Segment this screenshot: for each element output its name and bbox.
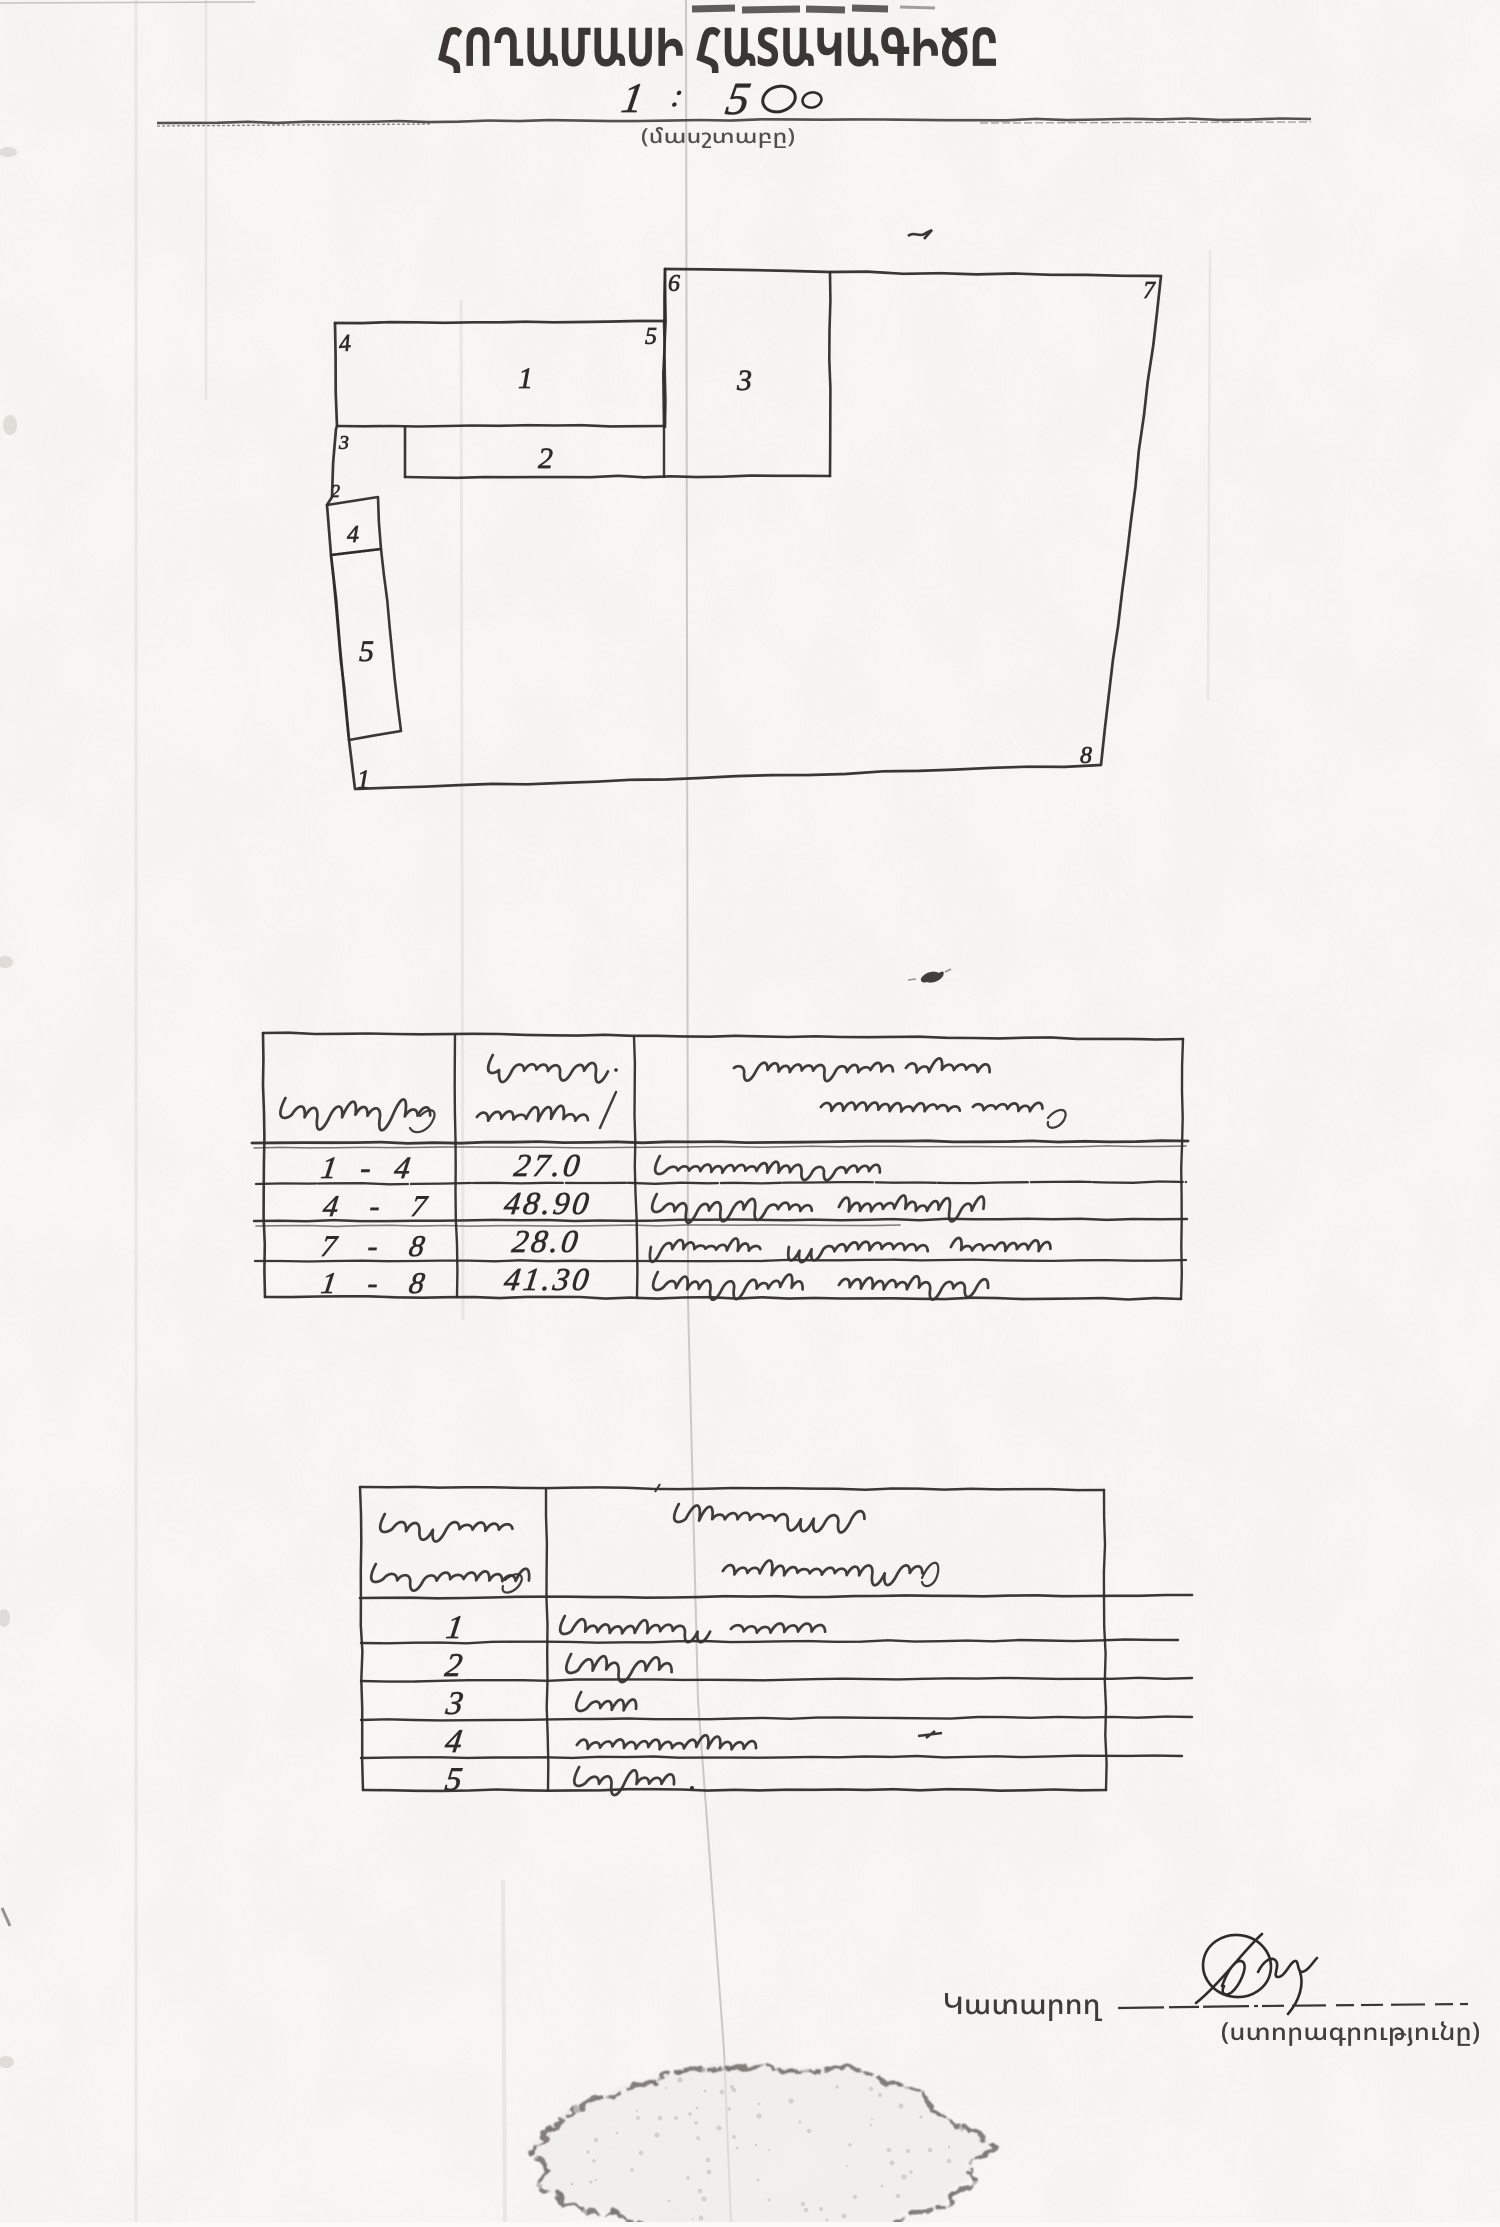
- svg-text:48.90: 48.90: [502, 1185, 594, 1221]
- svg-text:1: 1: [518, 362, 533, 395]
- svg-text:2: 2: [331, 481, 340, 501]
- svg-text:4 - 7: 4 - 7: [321, 1189, 441, 1223]
- svg-text:4: 4: [347, 522, 359, 548]
- svg-text:8: 8: [1080, 743, 1092, 769]
- svg-text:3: 3: [736, 364, 752, 397]
- svg-text:7: 7: [1143, 278, 1156, 304]
- svg-text:1 - 8: 1 - 8: [319, 1266, 439, 1300]
- svg-text:7 - 8: 7 - 8: [319, 1229, 439, 1263]
- svg-text:5: 5: [359, 635, 374, 668]
- svg-text:4: 4: [338, 331, 352, 358]
- svg-text:3: 3: [338, 432, 349, 454]
- svg-text:2: 2: [538, 442, 553, 475]
- svg-text:1 - 4: 1 - 4: [319, 1150, 421, 1185]
- svg-text:27.0: 27.0: [512, 1147, 585, 1183]
- svg-text:1: 1: [357, 765, 370, 794]
- svg-text:28.0: 28.0: [510, 1223, 583, 1259]
- svg-text:5: 5: [645, 324, 657, 350]
- svg-text:6: 6: [668, 271, 680, 297]
- svg-text:41.30: 41.30: [502, 1261, 594, 1297]
